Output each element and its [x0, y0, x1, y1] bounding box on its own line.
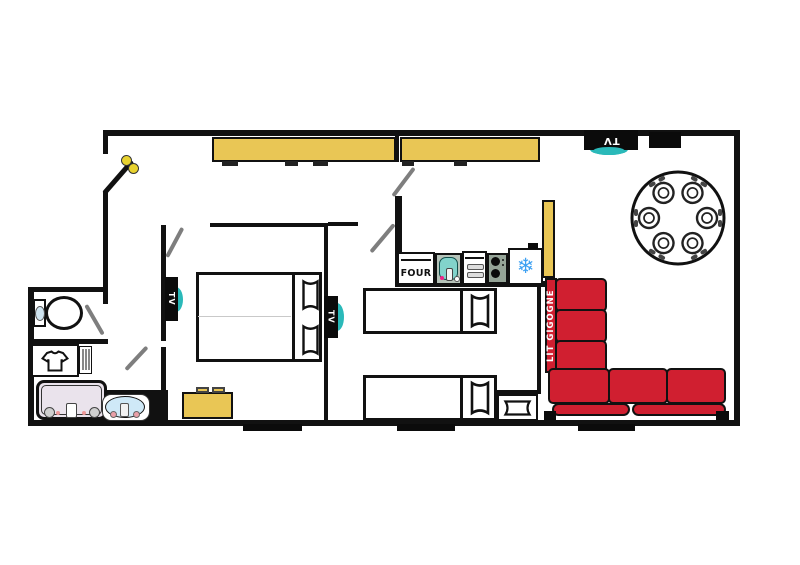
kitchen-faucet [446, 268, 453, 281]
kitchen-sink-knob [440, 276, 444, 280]
oven-top-line [401, 259, 431, 261]
wall-toilet-right-stub [103, 292, 108, 304]
shower-handle [66, 403, 77, 418]
wall-bedroom2-right [537, 285, 541, 393]
sofa-seat-cushion [666, 368, 726, 404]
dining-table [628, 168, 728, 268]
tv-label: TV [167, 292, 176, 306]
dresser-handle [212, 387, 225, 393]
sofa-foot [544, 411, 556, 420]
wardrobe-hanger-mark [454, 161, 467, 166]
tshirt-icon [41, 350, 69, 372]
snowflake-icon: ❄ [517, 256, 535, 277]
fridge: ❄ [508, 248, 543, 285]
pillow [469, 293, 491, 329]
toilet-door-leaf [84, 304, 104, 335]
dresser-handle [196, 387, 209, 393]
media-cabinet [649, 132, 681, 148]
wall-left-upper [103, 130, 108, 154]
towel-rack-slat [82, 349, 84, 370]
oven: FOUR [397, 252, 435, 285]
tv-bedroom2: TV [324, 296, 338, 338]
wall-right [734, 130, 740, 426]
dresser [182, 392, 233, 419]
stove [487, 253, 508, 284]
oven-label: FOUR [401, 268, 432, 279]
linen-cabinet [31, 344, 79, 377]
bedroom2-door-leaf [369, 223, 395, 253]
shower-faucet-knob [89, 407, 100, 418]
toilet-bowl [45, 296, 83, 330]
window-bedroom1 [243, 424, 302, 431]
floor-plan: TV FOUR [0, 0, 800, 565]
wardrobe-hanger-mark [222, 161, 238, 166]
utensil-icon [467, 272, 484, 278]
window-bedroom2 [397, 424, 455, 431]
fridge-handle [528, 243, 538, 249]
wardrobe-hall [212, 137, 396, 162]
sofa-chaise-cushion [555, 309, 607, 343]
toilet-flush-button [35, 306, 45, 321]
wall-top [103, 130, 740, 136]
single-bed-headboard-line [460, 289, 463, 333]
drawer-top-line [465, 257, 484, 259]
pillow [301, 279, 320, 311]
wall-left-lower [103, 192, 108, 292]
wall-bathroom-top [28, 287, 108, 292]
sofa-front-edge [632, 403, 726, 416]
wall-bedroom2-top-stub [328, 222, 358, 226]
bedside-cushion [503, 399, 532, 417]
utensil-icon [467, 264, 484, 270]
burner-icon [491, 257, 500, 266]
burner-icon [491, 269, 500, 278]
bathroom-sink-knob [133, 411, 140, 418]
wall-bedroom1-top [210, 223, 328, 227]
bathroom-faucet [120, 403, 129, 417]
stove-knob [502, 259, 504, 261]
double-bed-headboard-line [292, 273, 295, 361]
sofa-chaise-cushion [555, 278, 607, 312]
kitchen-sink-unit [435, 253, 462, 285]
pillow [469, 380, 491, 416]
cutlery-drawer [462, 251, 487, 285]
window-living [578, 424, 635, 431]
kitchen-sink-knob [454, 276, 460, 282]
wardrobe-hanger-mark [285, 161, 298, 166]
tv-label: TV [327, 310, 336, 324]
shower-faucet-knob [44, 407, 55, 418]
bathroom-door-leaf [124, 346, 148, 371]
wardrobe-hanger-mark [402, 161, 414, 166]
tall-cabinet [542, 200, 555, 278]
sofa-seat-cushion [608, 368, 668, 404]
bathroom-sink-knob [110, 411, 117, 418]
stove-knob [502, 264, 504, 266]
towel-rack [79, 346, 92, 374]
sofa-seat-cushion [548, 368, 610, 404]
double-bed-center-line [198, 316, 291, 317]
shower [36, 380, 107, 420]
sofa-front-edge [552, 403, 630, 416]
tv-screen-living [593, 147, 625, 155]
key-icon [128, 163, 139, 174]
sofa-foot [716, 411, 729, 420]
shower-dot [56, 411, 60, 415]
towel-rack-slat [85, 349, 87, 370]
tv-bedroom1: TV [165, 277, 178, 321]
hallway-living-door-leaf [391, 167, 415, 197]
towel-rack-slat [88, 349, 90, 370]
shower-dot [82, 411, 86, 415]
wardrobe-hanger-mark [313, 161, 328, 166]
tv-label: TV [603, 135, 620, 146]
single-bed-headboard-line [460, 376, 463, 420]
bedroom1-door-leaf [165, 227, 184, 258]
wardrobe-living [400, 137, 540, 162]
pillow [301, 324, 320, 356]
